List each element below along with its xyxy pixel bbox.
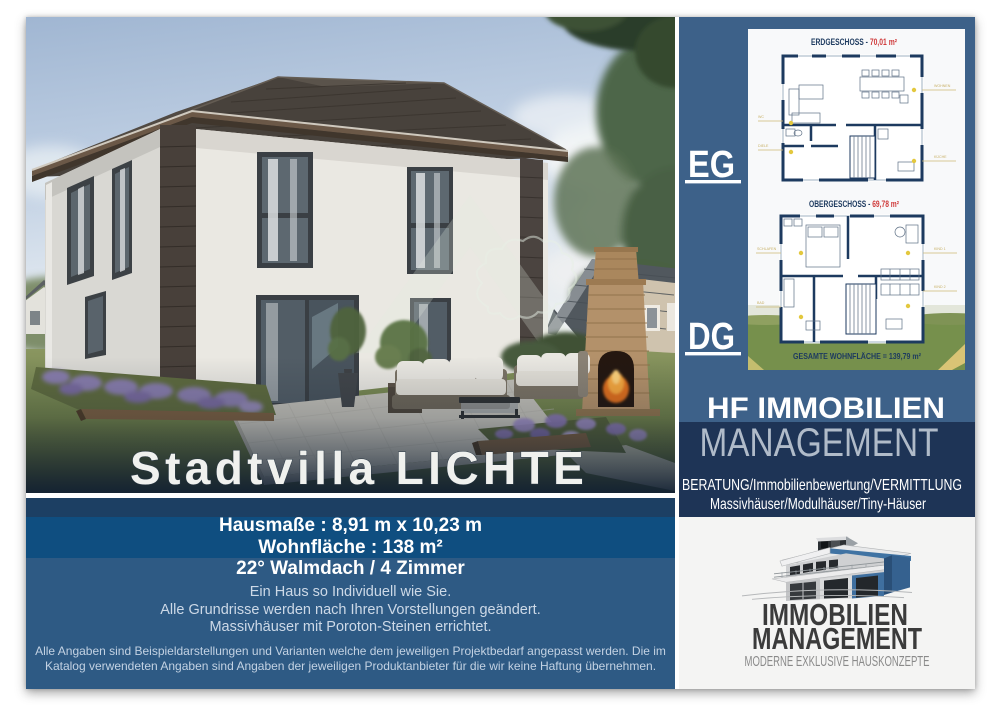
svg-text:DG: DG (688, 316, 735, 358)
svg-text:MANAGEMENT: MANAGEMENT (752, 621, 922, 656)
svg-text:Massivhäuser/Modulhäuser/Tiny-: Massivhäuser/Modulhäuser/Tiny-Häuser (710, 496, 927, 513)
svg-text:MANAGEMENT: MANAGEMENT (700, 421, 939, 465)
svg-text:EG: EG (688, 144, 735, 186)
svg-text:Stadtvilla LICHTE: Stadtvilla LICHTE (130, 442, 588, 493)
svg-text:MODERNE EXKLUSIVE HAUSKONZEPTE: MODERNE EXKLUSIVE HAUSKONZEPTE (745, 653, 930, 670)
svg-text:BERATUNG/Immobilienbewertung/V: BERATUNG/Immobilienbewertung/VERMITTLUNG (682, 477, 962, 494)
